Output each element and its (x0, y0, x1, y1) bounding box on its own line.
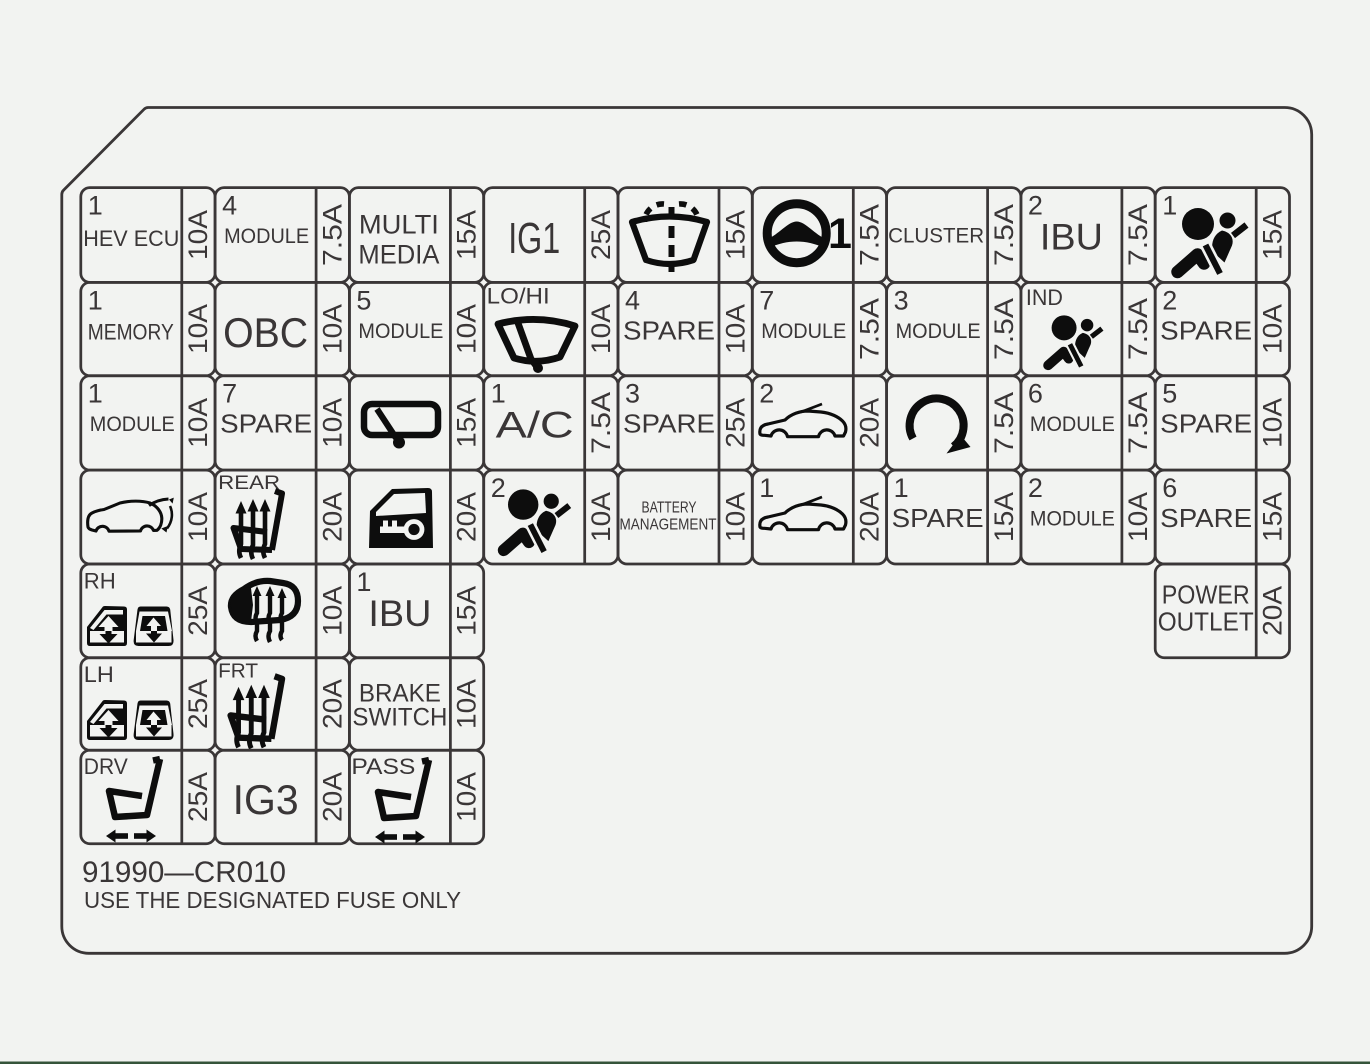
svg-text:25A: 25A (183, 772, 213, 822)
svg-text:MEDIA: MEDIA (358, 240, 439, 270)
svg-text:15A: 15A (989, 492, 1019, 542)
svg-text:1: 1 (894, 473, 909, 503)
svg-text:1: 1 (828, 210, 852, 258)
svg-text:25A: 25A (720, 398, 750, 448)
svg-text:USE THE DESIGNATED FUSE ONLY: USE THE DESIGNATED FUSE ONLY (84, 887, 461, 913)
svg-text:10A: 10A (586, 492, 616, 542)
svg-text:10A: 10A (720, 492, 750, 542)
svg-text:10A: 10A (586, 304, 616, 354)
svg-text:MANAGEMENT: MANAGEMENT (620, 517, 717, 534)
svg-text:LH: LH (84, 662, 114, 687)
svg-text:CLUSTER: CLUSTER (888, 225, 984, 248)
svg-text:10A: 10A (452, 304, 482, 354)
svg-text:7.5A: 7.5A (586, 392, 616, 454)
svg-text:HEV ECU: HEV ECU (83, 226, 179, 251)
svg-text:7.5A: 7.5A (317, 204, 347, 266)
svg-text:MODULE: MODULE (358, 320, 443, 343)
svg-text:SPARE: SPARE (1160, 409, 1252, 439)
svg-text:10A: 10A (317, 398, 347, 448)
svg-text:IBU: IBU (1040, 217, 1103, 258)
svg-text:FRT: FRT (218, 661, 258, 683)
svg-text:20A: 20A (317, 679, 347, 729)
svg-text:MULTI: MULTI (359, 210, 439, 240)
svg-text:OUTLET: OUTLET (1158, 607, 1254, 637)
svg-text:REAR: REAR (218, 473, 280, 494)
svg-text:20A: 20A (855, 492, 885, 542)
svg-text:15A: 15A (1258, 210, 1288, 260)
svg-text:MODULE: MODULE (224, 225, 309, 248)
svg-text:7.5A: 7.5A (855, 298, 885, 360)
svg-text:15A: 15A (1258, 492, 1288, 542)
svg-text:2: 2 (759, 379, 774, 409)
svg-text:10A: 10A (183, 492, 213, 542)
svg-text:SPARE: SPARE (623, 315, 715, 345)
svg-text:6: 6 (1162, 473, 1177, 503)
svg-text:10A: 10A (452, 679, 482, 729)
svg-text:SPARE: SPARE (623, 409, 715, 439)
svg-text:BATTERY: BATTERY (642, 500, 697, 517)
svg-text:10A: 10A (1258, 304, 1288, 354)
svg-text:7.5A: 7.5A (989, 298, 1019, 360)
svg-text:20A: 20A (855, 398, 885, 448)
svg-text:POWER: POWER (1162, 580, 1250, 610)
svg-text:PASS: PASS (351, 754, 415, 779)
svg-text:MODULE: MODULE (1030, 508, 1115, 531)
svg-text:5: 5 (356, 285, 371, 315)
svg-text:10A: 10A (1123, 492, 1153, 542)
svg-text:LO/HI: LO/HI (487, 283, 550, 308)
svg-text:SPARE: SPARE (1160, 315, 1252, 345)
svg-text:2: 2 (1028, 473, 1043, 503)
svg-text:1: 1 (88, 191, 103, 221)
svg-text:20A: 20A (452, 492, 482, 542)
svg-text:7: 7 (222, 379, 237, 409)
svg-text:MEMORY: MEMORY (88, 319, 174, 344)
svg-text:4: 4 (222, 191, 237, 221)
svg-text:RH: RH (84, 569, 116, 594)
svg-text:3: 3 (894, 285, 909, 315)
svg-text:25A: 25A (183, 586, 213, 636)
svg-text:91990—CR010: 91990—CR010 (82, 856, 286, 889)
svg-text:5: 5 (1162, 379, 1177, 409)
svg-text:1: 1 (759, 473, 774, 503)
svg-text:MODULE: MODULE (1030, 413, 1115, 436)
svg-text:15A: 15A (720, 210, 750, 260)
svg-text:3: 3 (625, 379, 640, 409)
svg-text:7.5A: 7.5A (855, 204, 885, 266)
svg-text:25A: 25A (183, 679, 213, 729)
svg-text:10A: 10A (317, 586, 347, 636)
svg-text:20A: 20A (317, 492, 347, 542)
svg-text:SPARE: SPARE (1160, 503, 1252, 533)
svg-text:20A: 20A (317, 772, 347, 822)
svg-text:DRV: DRV (84, 754, 128, 779)
svg-text:10A: 10A (1258, 398, 1288, 448)
svg-text:SPARE: SPARE (892, 503, 984, 533)
svg-text:2: 2 (491, 473, 506, 503)
svg-text:10A: 10A (720, 304, 750, 354)
svg-text:IBU: IBU (368, 593, 431, 634)
svg-text:MODULE: MODULE (896, 320, 981, 343)
svg-text:10A: 10A (183, 304, 213, 354)
svg-text:6: 6 (1028, 379, 1043, 409)
svg-text:MODULE: MODULE (761, 320, 846, 343)
svg-text:7.5A: 7.5A (989, 204, 1019, 266)
svg-text:OBC: OBC (223, 309, 308, 356)
svg-text:IG1: IG1 (508, 214, 560, 263)
svg-text:4: 4 (625, 285, 640, 315)
svg-text:7.5A: 7.5A (1123, 298, 1153, 360)
svg-text:7: 7 (759, 285, 774, 315)
svg-text:15A: 15A (452, 398, 482, 448)
svg-text:SWITCH: SWITCH (352, 704, 447, 732)
svg-text:7.5A: 7.5A (1123, 392, 1153, 454)
svg-text:2: 2 (1162, 285, 1177, 315)
svg-text:10A: 10A (183, 210, 213, 260)
svg-text:25A: 25A (586, 210, 616, 260)
svg-text:A/C: A/C (496, 405, 574, 446)
svg-text:7.5A: 7.5A (989, 392, 1019, 454)
svg-text:10A: 10A (317, 304, 347, 354)
svg-text:10A: 10A (183, 398, 213, 448)
svg-text:1: 1 (1162, 191, 1177, 221)
svg-text:SPARE: SPARE (220, 409, 312, 439)
svg-text:10A: 10A (452, 772, 482, 822)
svg-text:MODULE: MODULE (90, 413, 175, 436)
svg-text:7.5A: 7.5A (1123, 204, 1153, 266)
svg-text:15A: 15A (452, 586, 482, 636)
svg-text:15A: 15A (452, 210, 482, 260)
svg-text:1: 1 (88, 379, 103, 409)
svg-text:IG3: IG3 (233, 776, 299, 823)
svg-text:1: 1 (88, 285, 103, 315)
svg-text:20A: 20A (1258, 586, 1288, 636)
svg-text:IND: IND (1026, 285, 1063, 310)
